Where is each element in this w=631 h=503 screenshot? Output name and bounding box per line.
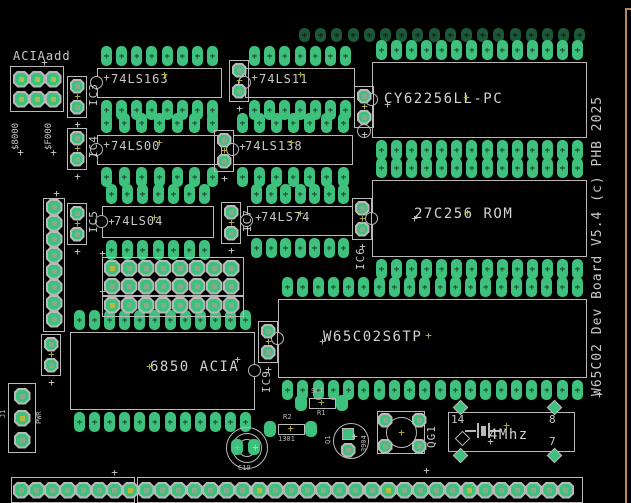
header-pin[interactable] [170, 482, 187, 499]
ic-pin-pad[interactable] [134, 412, 145, 432]
ic-pin-pad[interactable] [165, 412, 176, 432]
ic-pin-pad[interactable] [406, 158, 417, 178]
header-pin[interactable] [44, 482, 61, 499]
ic-pin-pad[interactable] [358, 380, 369, 400]
ic-pin-pad[interactable] [376, 40, 387, 60]
oscillator-ref[interactable]: QG1 [426, 412, 437, 448]
power-label[interactable]: PWR [36, 402, 43, 424]
ic-pin-pad[interactable] [542, 40, 553, 60]
ic-pin-pad[interactable] [421, 40, 432, 60]
ic-pin-pad[interactable] [482, 259, 493, 279]
ic-pin-pad[interactable] [338, 184, 349, 204]
ic-pin-pad[interactable] [282, 380, 293, 400]
ic-pin-pad[interactable] [101, 113, 112, 133]
header-pin[interactable] [234, 482, 251, 499]
header-pin[interactable] [46, 247, 63, 264]
ic-pin-pad[interactable] [376, 259, 387, 279]
ic-pin-pad[interactable] [496, 277, 507, 297]
ic-pin-pad[interactable] [153, 184, 164, 204]
header-pin[interactable] [444, 482, 461, 499]
top-header-pad[interactable] [348, 28, 359, 42]
ic-pin-pad[interactable] [154, 113, 165, 133]
grid-pin[interactable] [121, 260, 138, 277]
ic-pin-pad[interactable] [542, 259, 553, 279]
ic-pin-pad[interactable] [572, 40, 583, 60]
ic-pin-pad[interactable] [526, 380, 537, 400]
header-pin[interactable] [461, 482, 478, 499]
ic-pin-pad[interactable] [297, 277, 308, 297]
header-pin[interactable] [46, 295, 63, 312]
header-pin[interactable] [46, 199, 63, 216]
resistor-value[interactable]: 1301 [278, 436, 295, 444]
header-pin[interactable] [46, 215, 63, 232]
header-pin[interactable] [75, 482, 92, 499]
ic-pin-pad[interactable] [511, 380, 522, 400]
ic-pin-pad[interactable] [266, 184, 277, 204]
grid-pin[interactable] [189, 297, 206, 314]
resistor-pad[interactable] [336, 395, 348, 411]
ic-pin-pad[interactable] [321, 113, 332, 133]
silk-cross [251, 443, 260, 452]
transistor-ref[interactable]: Q1 [325, 428, 332, 444]
ic-pin-pad[interactable] [451, 158, 462, 178]
ic-label[interactable]: 6850 ACIA [150, 360, 239, 375]
silk-cross [98, 287, 107, 296]
grid-pin[interactable] [223, 297, 240, 314]
ic-pin-pad[interactable] [466, 158, 477, 178]
ic-pin-pad[interactable] [237, 167, 248, 187]
header-pin[interactable] [218, 482, 235, 499]
jumper-pad[interactable] [45, 71, 62, 88]
ic-label[interactable]: CY62256LL-PC [384, 92, 503, 107]
ic-pin-pad[interactable] [389, 380, 400, 400]
ic-pin-pad[interactable] [421, 158, 432, 178]
ic-pin-pad[interactable] [572, 140, 583, 160]
resistor-pad[interactable] [305, 421, 317, 437]
header-pin[interactable] [13, 482, 30, 499]
header-pin[interactable] [46, 311, 63, 328]
address-option-label[interactable]: $F000 [45, 110, 54, 150]
pin-number: 14 [451, 414, 464, 426]
ic-pin-pad[interactable] [101, 46, 112, 66]
ic-pin-pad[interactable] [542, 140, 553, 160]
grid-pin[interactable] [121, 278, 138, 295]
ic-pin-pad[interactable] [338, 238, 349, 258]
silk-cross [73, 247, 82, 256]
ic-pin-pad[interactable] [249, 46, 260, 66]
jumper-pad[interactable] [13, 91, 30, 108]
ic-pin-pad[interactable] [389, 277, 400, 297]
ic-pin-pad[interactable] [451, 140, 462, 160]
jumper-pad[interactable] [29, 71, 46, 88]
ic-pin-pad[interactable] [131, 46, 142, 66]
cap-ref[interactable]: IC3 [88, 80, 99, 106]
grid-pin[interactable] [223, 260, 240, 277]
resistor-ref[interactable]: R2 [283, 414, 291, 422]
ic-pin-pad[interactable] [106, 184, 117, 204]
ic-pin-pad[interactable] [325, 46, 336, 66]
board-edge-line [625, 8, 631, 10]
ic-pin-pad[interactable] [572, 277, 583, 297]
ic-pin-pad[interactable] [511, 277, 522, 297]
ic-pin-pad[interactable] [512, 259, 523, 279]
ic-pin-pad[interactable] [313, 277, 324, 297]
ic-label[interactable]: W65C02S6TP [323, 330, 422, 345]
origin-cross [73, 219, 82, 228]
header-pin[interactable] [46, 279, 63, 296]
grid-pin[interactable] [206, 297, 223, 314]
ic-pin-pad[interactable] [436, 158, 447, 178]
origin-cross [424, 331, 433, 340]
ic-pin-pad[interactable] [237, 113, 248, 133]
header-pin[interactable] [299, 482, 316, 499]
header-pin[interactable] [186, 482, 203, 499]
ic-pin-pad[interactable] [89, 310, 100, 330]
ic-pin-pad[interactable] [104, 412, 115, 432]
origin-cross [264, 337, 273, 346]
top-header-pad[interactable] [510, 28, 521, 42]
ic-pin-pad[interactable] [435, 277, 446, 297]
cap-ref[interactable]: IC4 [88, 132, 99, 158]
top-header-pad[interactable] [299, 28, 310, 42]
header-pin[interactable] [396, 482, 413, 499]
ic-pin-pad[interactable] [527, 259, 538, 279]
ic-pin-pad[interactable] [557, 380, 568, 400]
ic-label[interactable]: 74LS00 [111, 140, 160, 153]
origin-cross [150, 213, 159, 222]
power-pin[interactable] [14, 388, 31, 405]
ic-pin-pad[interactable] [119, 113, 130, 133]
ic-pin-pad[interactable] [74, 310, 85, 330]
ic-pin-pad[interactable] [436, 40, 447, 60]
ic-pin-pad[interactable] [557, 140, 568, 160]
ic-pin-pad[interactable] [340, 46, 351, 66]
ic-pin-pad[interactable] [295, 46, 306, 66]
ic-pin-pad[interactable] [435, 380, 446, 400]
ic-pin-pad[interactable] [436, 259, 447, 279]
jumper-pad[interactable] [13, 71, 30, 88]
header-pin[interactable] [315, 482, 332, 499]
ic-pin-pad[interactable] [192, 46, 203, 66]
ic-pin-pad[interactable] [436, 140, 447, 160]
ic-pin-pad[interactable] [207, 46, 218, 66]
ic-pin-pad[interactable] [497, 158, 508, 178]
cap-ref[interactable]: C10 [238, 465, 251, 473]
ic-pin-pad[interactable] [572, 380, 583, 400]
grid-pin[interactable] [206, 260, 223, 277]
ic-pin-pad[interactable] [146, 46, 157, 66]
ic-pin-pad[interactable] [168, 184, 179, 204]
ic-pin-pad[interactable] [324, 238, 335, 258]
ic-pin-pad[interactable] [280, 238, 291, 258]
ic-pin-pad[interactable] [324, 184, 335, 204]
ic-pin-pad[interactable] [304, 113, 315, 133]
top-header-pad[interactable] [477, 28, 488, 42]
ic-pin-pad[interactable] [180, 412, 191, 432]
cap-ref[interactable]: IC5 [88, 207, 99, 233]
ic-pin-pad[interactable] [465, 277, 476, 297]
ic-pin-pad[interactable] [251, 238, 262, 258]
ic-pin-pad[interactable] [542, 158, 553, 178]
ic-pin-pad[interactable] [497, 40, 508, 60]
ic-pin-pad[interactable] [482, 158, 493, 178]
ic-pin-pad[interactable] [480, 277, 491, 297]
ic-pin-pad[interactable] [406, 259, 417, 279]
ic-pin-pad[interactable] [451, 259, 462, 279]
ic-pin-pad[interactable] [309, 184, 320, 204]
header-pin[interactable] [331, 482, 348, 499]
resistor-ref[interactable]: R1 [317, 410, 325, 418]
ic-pin-pad[interactable] [557, 259, 568, 279]
ic-pin-pad[interactable] [282, 277, 293, 297]
ic-pin-pad[interactable] [450, 277, 461, 297]
ic-pin-pad[interactable] [421, 140, 432, 160]
header-pin[interactable] [541, 482, 558, 499]
ic-pin-pad[interactable] [195, 412, 206, 432]
header-pin[interactable] [557, 482, 574, 499]
grid-pin[interactable] [104, 297, 121, 314]
ic-pin-pad[interactable] [497, 140, 508, 160]
jumper-pad[interactable] [29, 91, 46, 108]
top-header-pad[interactable] [396, 28, 407, 42]
power-ref[interactable]: J1 [0, 402, 7, 418]
ic-pin-pad[interactable] [122, 184, 133, 204]
header-pin[interactable] [380, 482, 397, 499]
header-pin[interactable] [46, 231, 63, 248]
top-header-pad[interactable] [445, 28, 456, 42]
silk-cross [233, 355, 242, 364]
ic-pin-pad[interactable] [225, 412, 236, 432]
ic-pin-pad[interactable] [391, 140, 402, 160]
silk-line [465, 430, 476, 432]
grid-pin[interactable] [121, 297, 138, 314]
grid-pin[interactable] [223, 278, 240, 295]
origin-cross [220, 146, 229, 155]
transistor-pad[interactable] [341, 443, 356, 458]
ic-pin-pad[interactable] [391, 158, 402, 178]
ic-pin-pad[interactable] [177, 46, 188, 66]
origin-cross [73, 92, 82, 101]
ic-pin-pad[interactable] [450, 380, 461, 400]
header-pin[interactable] [477, 482, 494, 499]
ic-pin-pad[interactable] [527, 40, 538, 60]
top-header-pad[interactable] [574, 28, 585, 42]
pcb-canvas: 74LS16374LS11CY62256LL-PC74LS0074LS13874… [0, 0, 631, 503]
ic-pin-pad[interactable] [512, 140, 523, 160]
ic-pin-pad[interactable] [466, 140, 477, 160]
header-pin[interactable] [46, 263, 63, 280]
ic-pin-pad[interactable] [466, 259, 477, 279]
power-pin[interactable] [14, 410, 31, 427]
ic-pin-pad[interactable] [572, 259, 583, 279]
ic-pin-pad[interactable] [465, 380, 476, 400]
ic-pin-pad[interactable] [210, 412, 221, 432]
ic-pin-pad[interactable] [406, 140, 417, 160]
ic-pin-pad[interactable] [512, 40, 523, 60]
ic-pin-pad[interactable] [406, 40, 417, 60]
ic-pin-pad[interactable] [137, 184, 148, 204]
header-pin[interactable] [59, 482, 76, 499]
silk-cross [49, 148, 58, 157]
board-edge-line [625, 8, 627, 503]
ic-pin-pad[interactable] [480, 380, 491, 400]
ic-pin-pad[interactable] [374, 277, 385, 297]
ic-pin-pad[interactable] [254, 113, 265, 133]
grid-pin[interactable] [138, 278, 155, 295]
header-pin[interactable] [251, 482, 268, 499]
power-pin[interactable] [14, 432, 31, 449]
ic-pin-pad[interactable] [419, 380, 430, 400]
ic-pin-pad[interactable] [466, 40, 477, 60]
ic-pin-pad[interactable] [343, 277, 354, 297]
resistor-value[interactable]: SCT [311, 388, 324, 396]
ic-pin-pad[interactable] [288, 113, 299, 133]
ic-pin-pad[interactable] [199, 184, 210, 204]
header-pin[interactable] [283, 482, 300, 499]
header-pin[interactable] [509, 482, 526, 499]
ic-pin-pad[interactable] [391, 40, 402, 60]
ic-pin-pad[interactable] [404, 277, 415, 297]
ic-pin-pad[interactable] [527, 140, 538, 160]
ic-pin-pad[interactable] [376, 140, 387, 160]
ic-pin-pad[interactable] [374, 380, 385, 400]
ic-pin-pad[interactable] [116, 46, 127, 66]
ic-pin-pad[interactable] [309, 238, 320, 258]
header-pin[interactable] [428, 482, 445, 499]
ic-pin-pad[interactable] [419, 277, 430, 297]
grid-pin[interactable] [172, 278, 189, 295]
header-pin[interactable] [412, 482, 429, 499]
ic-pin-pad[interactable] [338, 113, 349, 133]
header-pin[interactable] [106, 482, 123, 499]
ic-pin-pad[interactable] [512, 158, 523, 178]
silk-cross [220, 174, 229, 183]
ic-pin-pad[interactable] [557, 277, 568, 297]
ic-pin-pad[interactable] [557, 158, 568, 178]
grid-pin[interactable] [138, 297, 155, 314]
ic-pin-pad[interactable] [251, 184, 262, 204]
ic-pin-pad[interactable] [358, 277, 369, 297]
ic-pin-pad[interactable] [404, 380, 415, 400]
ic-pin-pad[interactable] [149, 412, 160, 432]
grid-pin[interactable] [172, 260, 189, 277]
top-header-pad[interactable] [558, 28, 569, 42]
origin-cross [463, 208, 472, 217]
ic-pin-pad[interactable] [527, 158, 538, 178]
grid-pin[interactable] [138, 260, 155, 277]
cap-ref[interactable]: IC7 [242, 206, 253, 232]
ic-pin-pad[interactable] [497, 259, 508, 279]
header-pin[interactable] [267, 482, 284, 499]
ic-pin-pad[interactable] [451, 40, 462, 60]
ic-pin-pad[interactable] [295, 238, 306, 258]
ic-pin-pad[interactable] [295, 184, 306, 204]
header-pin[interactable] [202, 482, 219, 499]
ic-pin-pad[interactable] [271, 113, 282, 133]
top-header-pad[interactable] [461, 28, 472, 42]
ic-pin-pad[interactable] [119, 412, 130, 432]
ic-pin-pad[interactable] [74, 412, 85, 432]
ic-pin-pad[interactable] [376, 158, 387, 178]
grid-pin[interactable] [155, 260, 172, 277]
ic-pin-pad[interactable] [89, 412, 100, 432]
ic-pin-pad[interactable] [280, 184, 291, 204]
grid-pin[interactable] [104, 260, 121, 277]
address-option-label[interactable]: $8000 [12, 110, 21, 150]
ic-pin-pad[interactable] [189, 113, 200, 133]
origin-cross [360, 102, 369, 111]
ic-pin-pad[interactable] [557, 40, 568, 60]
top-header-pad[interactable] [315, 28, 326, 42]
ic-pin-pad[interactable] [541, 277, 552, 297]
top-header-pad[interactable] [380, 28, 391, 42]
ic-pin-pad[interactable] [162, 46, 173, 66]
cap-ref[interactable]: IC9 [261, 367, 272, 393]
ic-pin-pad[interactable] [482, 140, 493, 160]
grid-pin[interactable] [206, 278, 223, 295]
ic-pin-pad[interactable] [421, 259, 432, 279]
top-header-pad[interactable] [526, 28, 537, 42]
cap-ref[interactable]: IC6 [355, 244, 366, 270]
origin-cross [296, 70, 305, 79]
grid-pin[interactable] [155, 278, 172, 295]
ic-pin-pad[interactable] [184, 184, 195, 204]
jumper-pad[interactable] [45, 91, 62, 108]
header-pin[interactable] [28, 482, 45, 499]
origin-cross [287, 138, 296, 147]
top-header-pad[interactable] [429, 28, 440, 42]
header-pin[interactable] [347, 482, 364, 499]
top-header-pad[interactable] [493, 28, 504, 42]
board-title[interactable]: W65C02 Dev Board V5.4 (c) PHB 2025 [591, 104, 604, 396]
header-pin[interactable] [138, 482, 155, 499]
grid-pin[interactable] [172, 297, 189, 314]
origin-cross [286, 424, 295, 433]
ic-pin-pad[interactable] [264, 46, 275, 66]
ic-pin-pad[interactable] [526, 277, 537, 297]
transistor-value[interactable]: 3904 [361, 424, 368, 452]
resistor-pad[interactable] [264, 421, 276, 437]
ic-pin-pad[interactable] [572, 158, 583, 178]
ic-pin-pad[interactable] [482, 40, 493, 60]
resistor-pad[interactable] [295, 395, 307, 411]
header-pin[interactable] [493, 482, 510, 499]
silk-cross [254, 213, 263, 222]
header-pin[interactable] [364, 482, 381, 499]
ic-pin-pad[interactable] [266, 238, 277, 258]
grid-pin[interactable] [155, 297, 172, 314]
ic-pin-pad[interactable] [496, 380, 507, 400]
ic-pin-pad[interactable] [541, 380, 552, 400]
grid-pin[interactable] [189, 278, 206, 295]
ic-pin-pad[interactable] [172, 113, 183, 133]
header-pin[interactable] [525, 482, 542, 499]
top-header-pad[interactable] [542, 28, 553, 42]
ic-pin-pad[interactable] [391, 259, 402, 279]
origin-cross [227, 218, 236, 227]
ic-pin-pad[interactable] [136, 113, 147, 133]
ic-pin-pad[interactable] [310, 46, 321, 66]
pin-number: 8 [549, 414, 556, 426]
top-header-pad[interactable] [364, 28, 375, 42]
ic-pin-pad[interactable] [279, 46, 290, 66]
top-header-pad[interactable] [331, 28, 342, 42]
header-pin[interactable] [154, 482, 171, 499]
header-pin[interactable] [91, 482, 108, 499]
top-header-pad[interactable] [412, 28, 423, 42]
grid-pin[interactable] [189, 260, 206, 277]
ic-pin-pad[interactable] [328, 277, 339, 297]
